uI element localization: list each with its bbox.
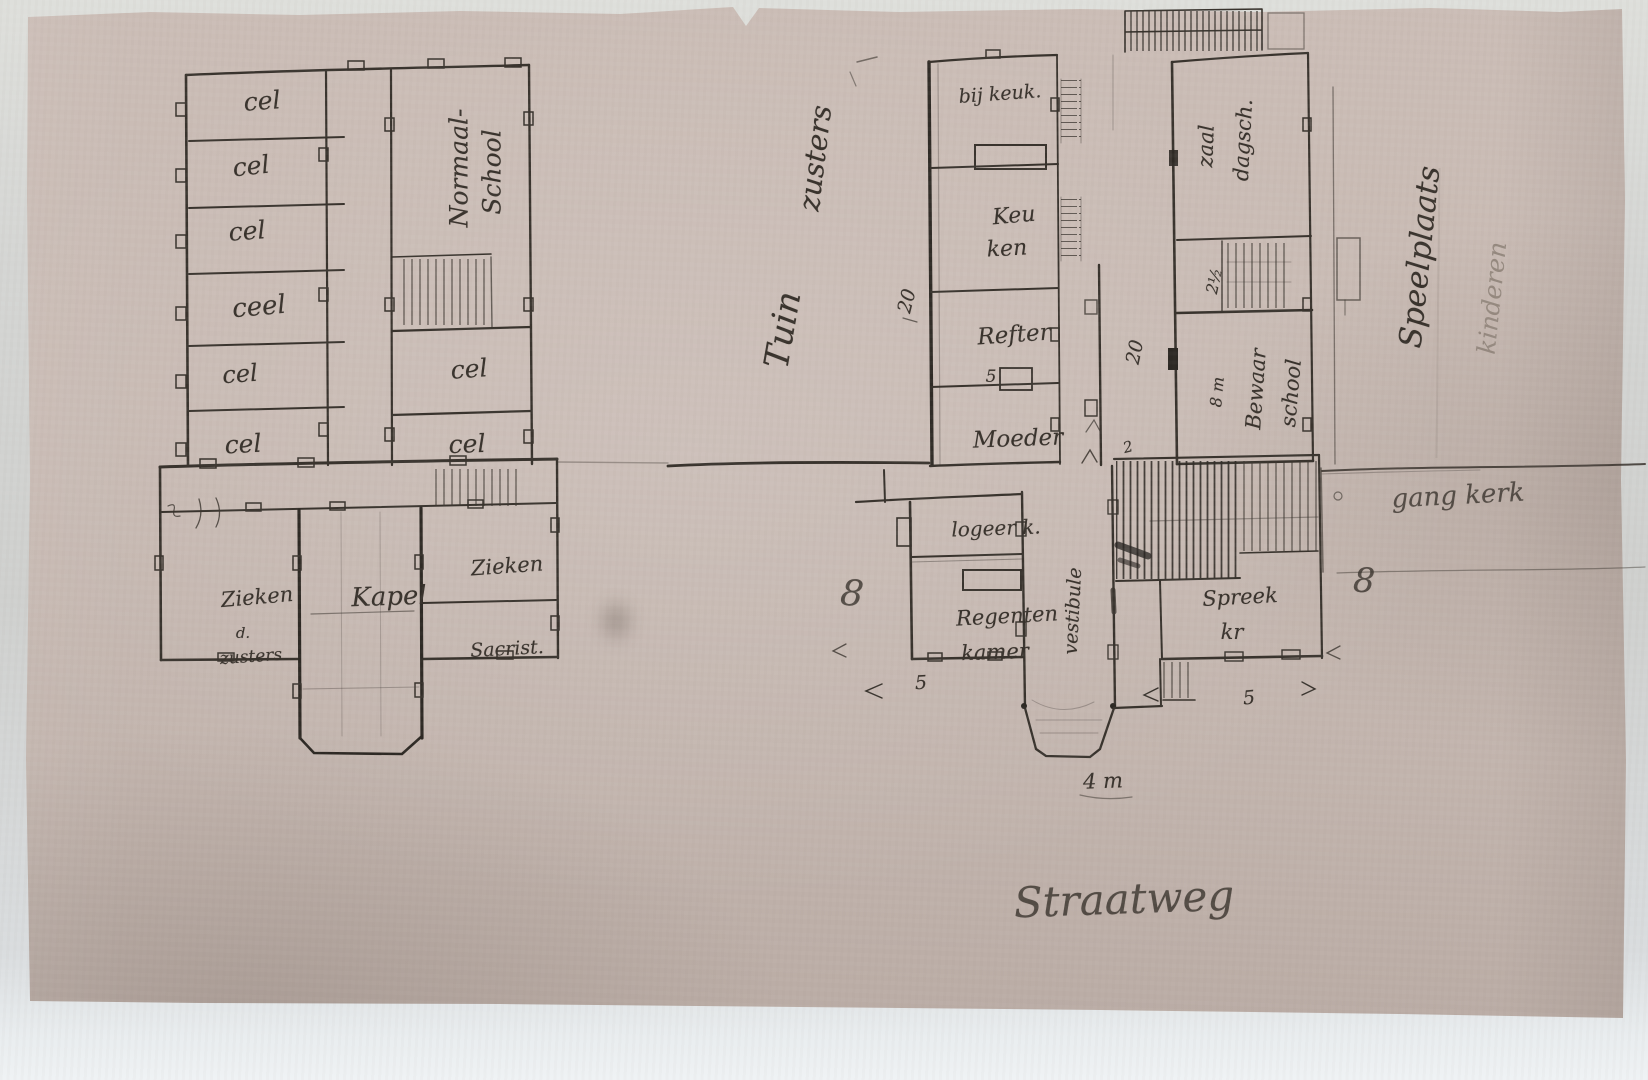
room-label-cel-5: cel (221, 359, 258, 389)
dimension-5-guest-block: 5 (914, 672, 927, 695)
room-label-normaalschool-2: School (478, 129, 507, 214)
mark-8-left: 8 (838, 572, 865, 615)
room-label-cel-4: ceel (231, 290, 287, 325)
room-label-zieken: Zieken (470, 552, 544, 581)
room-label-keuken-2: ken (986, 235, 1028, 262)
room-label-keuken-1: Keu (991, 202, 1036, 231)
room-label-cel-3: cel (228, 215, 267, 246)
regents-table (963, 570, 1021, 590)
room-label-regentenkamer-2: kamer (961, 639, 1029, 665)
room-label-sacristie: Sacrist. (470, 636, 545, 662)
chapel-outline (299, 508, 422, 754)
room-label-spreekkamer-2: kr (1221, 620, 1244, 644)
room-label-dagschool-1: zaal (1193, 124, 1218, 168)
dimension-5-parlor: 5 (1242, 687, 1256, 710)
room-label-vestibule: vestibule (1060, 567, 1087, 655)
dimension-5-refter: 5 (986, 367, 997, 387)
drawing-area: cel cel cel ceel cel cel cel cel Normaal… (0, 0, 1648, 1080)
mark-8-right: 8 (1352, 560, 1376, 601)
room-label-cel-2: cel (231, 150, 271, 183)
room-label-kapel: Kapel (351, 581, 427, 614)
room-label-cel-6: cel (224, 429, 262, 460)
room-label-logeerkamer: logeer k. (951, 514, 1041, 541)
stairs-hatch-main-right (1240, 461, 1317, 551)
left-wing-walls (186, 65, 532, 466)
refter-sketch (1000, 368, 1032, 390)
dimension-8m-bewaarschool: 8 m (1206, 376, 1228, 408)
garden-gate (1337, 238, 1360, 300)
room-label-cel-1: cel (243, 85, 282, 116)
room-label-cel-right-2: cel (448, 429, 486, 459)
room-label-refter: Refter (977, 319, 1052, 350)
corridor-walls (1061, 55, 1113, 465)
entrance-block-walls (833, 455, 1340, 799)
area-label-straatweg: Straatweg (1013, 871, 1235, 928)
stairs-hatch-top (1126, 11, 1262, 51)
stairs-hatch-normalschool (400, 259, 488, 325)
door-mark (897, 518, 911, 546)
room-label-cel-right-1: cel (450, 353, 489, 384)
room-label-spreekkamer-1: Spreek (1202, 583, 1279, 611)
room-label-normaalschool-1: Normaal- (445, 109, 474, 228)
room-label-moeder: Moeder (972, 424, 1063, 453)
stairs-hatch-school-wing (1227, 243, 1291, 308)
ink-smudge (585, 585, 647, 657)
room-label-zieken-zusters-2: d. (236, 624, 250, 642)
dimension-4m-porch: 4 m (1083, 768, 1124, 793)
room-label-dagschool-2: dagsch. (1229, 98, 1257, 181)
scanned-floorplan-sketch: cel cel cel ceel cel cel cel cel Normaal… (0, 0, 1648, 1080)
